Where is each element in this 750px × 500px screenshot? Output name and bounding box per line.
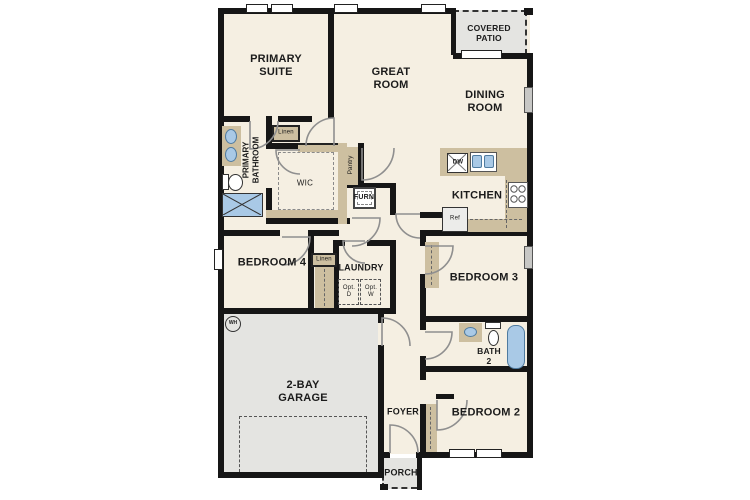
shower — [222, 193, 263, 217]
window — [421, 4, 446, 13]
label-garage: 2-BAY GARAGE — [278, 379, 327, 405]
garage-wall-right — [378, 313, 384, 323]
sink-basin — [472, 155, 482, 168]
garage-wall-right — [378, 345, 384, 478]
toilet-bowl — [488, 330, 499, 346]
exterior-wall-bottom — [380, 452, 390, 458]
sink-basin — [484, 155, 494, 168]
wall-bath2-left — [420, 322, 426, 330]
wall — [278, 116, 312, 122]
window — [246, 4, 268, 13]
label-bedroom-4: BEDROOM 4 — [238, 257, 306, 270]
bathtub — [507, 325, 525, 369]
porch-post — [380, 484, 388, 490]
window — [334, 4, 358, 13]
window — [214, 249, 223, 270]
kitchen-counter-bottom — [468, 219, 527, 232]
wall — [266, 143, 298, 149]
window — [524, 246, 533, 269]
bed2-closet — [426, 404, 437, 452]
label-linen-hall: Linen — [316, 256, 332, 263]
counter-edge-line — [470, 219, 522, 220]
opt-dryer-label: Opt. D — [343, 285, 355, 299]
label-pantry: Pantry — [347, 156, 355, 175]
window — [524, 87, 533, 113]
wall-bath2-top — [420, 316, 533, 322]
wall-suite-greatroom — [328, 8, 334, 118]
furnace-label: FURN — [354, 194, 374, 202]
label-bedroom-3: BEDROOM 3 — [450, 272, 518, 285]
wall-bed2-closet — [436, 394, 454, 399]
exterior-wall-left — [218, 8, 224, 478]
wall-pantry-right — [358, 143, 364, 185]
stove-cooktop — [508, 182, 528, 208]
wall-bed4-right — [308, 236, 314, 308]
label-porch: PORCH — [384, 468, 418, 479]
label-dining-room: DINING ROOM — [465, 89, 505, 115]
patio-wall-left — [451, 8, 456, 55]
water-heater: WH — [225, 316, 241, 332]
label-bath-2: BATH 2 — [477, 346, 501, 366]
garage-wall-bottom — [218, 472, 384, 478]
patio-post — [524, 8, 533, 15]
garage-door — [239, 416, 367, 472]
wall-bed2-left — [420, 372, 426, 380]
wall — [420, 212, 443, 218]
window — [476, 449, 502, 458]
floor-plan-canvas: DW Ref FURN Opt. D Opt. W WH — [0, 0, 750, 500]
closet-rod-line — [324, 269, 325, 306]
wall-garage-top — [218, 308, 396, 314]
wall-furn-right — [390, 183, 396, 215]
label-great-room: GREAT ROOM — [372, 66, 411, 92]
bath2-sink — [464, 327, 477, 337]
counter-edge-line — [506, 180, 507, 228]
wall-laundry-right — [390, 240, 396, 313]
opt-washer-label: Opt. W — [365, 285, 377, 299]
wall-laundry-top — [333, 240, 345, 246]
wall — [218, 116, 250, 122]
label-wic: WIC — [297, 178, 313, 187]
label-kitchen: KITCHEN — [452, 190, 502, 203]
window — [449, 449, 475, 458]
wall-bed4-top — [218, 230, 280, 236]
closet-rod-line — [430, 407, 431, 449]
dishwasher-label: DW — [453, 159, 463, 166]
vanity-sink — [225, 129, 237, 144]
vanity-sink — [225, 147, 237, 162]
bed3-closet — [425, 242, 439, 288]
closet-rod-line — [431, 245, 432, 285]
label-bedroom-2: BEDROOM 2 — [452, 407, 520, 420]
refrigerator-label: Ref — [450, 215, 460, 222]
label-primary-bathroom: PRIMARY BATHROOM — [241, 137, 260, 184]
label-laundry: LAUNDRY — [338, 263, 383, 274]
label-covered-patio: COVERED PATIO — [467, 23, 510, 43]
label-foyer: FOYER — [387, 407, 419, 418]
label-linen-upper: Linen — [278, 129, 294, 136]
wic-shelving — [266, 210, 347, 218]
window — [271, 4, 293, 13]
label-primary-suite: PRIMARY SUITE — [250, 53, 302, 79]
toilet-tank — [485, 322, 501, 329]
window — [461, 50, 502, 59]
